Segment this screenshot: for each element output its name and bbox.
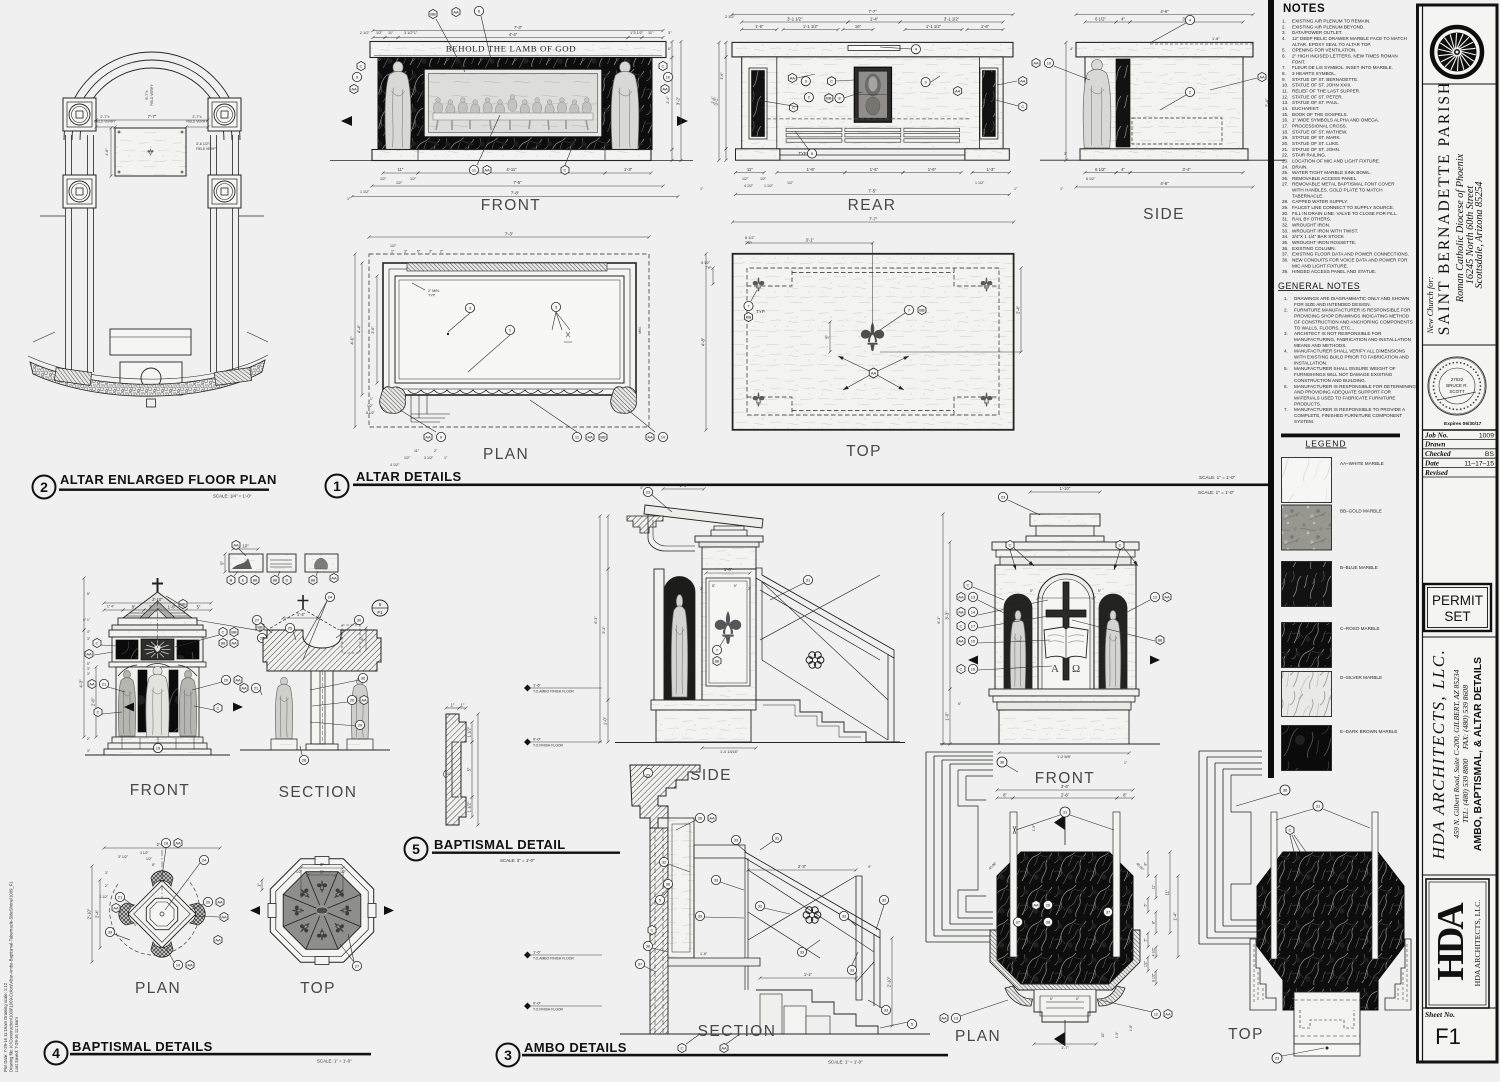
svg-text:8 1/2": 8 1/2" [701,261,711,265]
svg-text:3/4"X 1 1/4" BAR STOCK: 3/4"X 1 1/4" BAR STOCK [1292,234,1345,239]
svg-text:BAPTISMAL DETAILS: BAPTISMAL DETAILS [72,1039,213,1054]
svg-text:AA: AA [790,75,796,80]
svg-text:6 1/2": 6 1/2" [1095,17,1106,22]
svg-text:AA: AA [871,370,877,375]
svg-text:1'-4": 1'-4" [1173,912,1178,921]
svg-text:AA: AA [662,86,668,91]
svg-text:1'-10": 1'-10" [1060,486,1071,491]
svg-text:STATUE OF ST. PAUL.: STATUE OF ST. PAUL. [1292,100,1339,105]
svg-text:1'-6": 1'-6" [1212,37,1220,41]
svg-text:30: 30 [361,675,366,680]
svg-text:1'-6": 1'-6" [679,483,688,488]
svg-text:LEGEND: LEGEND [1306,439,1347,449]
svg-text:33: 33 [850,967,855,972]
svg-text:1/2": 1/2" [396,181,403,185]
svg-text:88: 88 [273,577,278,582]
svg-text:AA: AA [235,677,241,682]
svg-text:Date: Date [1424,460,1440,468]
svg-text:FAUCET LINE CONNECT TO SUPPLY: FAUCET LINE CONNECT TO SUPPLY SOURCE. [1292,205,1394,210]
svg-text:30.: 30. [1282,211,1288,216]
svg-text:12.: 12. [1282,94,1288,99]
svg-text:15: 15 [971,638,976,643]
svg-text:ARCHITECT IS NOT RESPONSIBLE F: ARCHITECT IS NOT RESPONSIBLE FOR [1294,331,1382,336]
svg-text:1.: 1. [1284,296,1288,301]
svg-text:23: 23 [1001,494,1006,499]
svg-text:4: 4 [52,1045,60,1061]
svg-text:6": 6" [1003,793,1007,798]
svg-text:MIN.: MIN. [638,326,642,333]
svg-text:DRAWINGS ARE DIAGRAMMATIC ONLY: DRAWINGS ARE DIAGRAMMATIC ONLY AND SHOWN [1294,296,1409,301]
svg-text:27: 27 [255,617,260,622]
svg-text:32: 32 [882,897,887,902]
svg-text:2 1/2": 2 1/2" [360,31,370,35]
svg-text:Revised: Revised [1424,469,1448,477]
svg-text:1'-6": 1'-6" [1129,1024,1133,1031]
svg-text:14.: 14. [1282,106,1288,111]
svg-text:5": 5" [361,637,366,641]
svg-text:C: C [1289,827,1292,832]
svg-text:AA: AA [721,1045,727,1050]
svg-text:37.: 37. [1282,252,1288,257]
svg-text:24: 24 [202,857,207,862]
svg-text:B–BLUE MARBLE: B–BLUE MARBLE [1340,565,1378,570]
svg-text:AA: AA [351,86,357,91]
svg-text:EUCHARIST.: EUCHARIST. [1292,106,1319,111]
svg-text:14: 14 [971,609,976,614]
svg-text:1/2": 1/2" [390,244,397,248]
svg-text:3": 3" [149,605,153,610]
svg-text:25: 25 [288,625,293,630]
svg-text:TABERNACLE.: TABERNACLE. [1292,193,1324,198]
svg-text:12: 12 [1153,594,1158,599]
svg-text:AA: AA [958,594,964,599]
svg-text:6 1/2": 6 1/2" [1086,177,1096,181]
svg-text:TEL: (480) 539 8800 FAX: (: TEL: (480) 539 8800 FAX: (480) 539 8608 [1461,685,1470,823]
svg-text:3'-6 1/2"±: 3'-6 1/2"± [196,142,211,146]
svg-text:3 HEARTS SYMBOL.: 3 HEARTS SYMBOL. [1292,71,1336,76]
svg-text:C: C [830,79,833,84]
svg-text:21: 21 [102,681,107,686]
svg-text:16: 16 [971,666,976,671]
svg-text:1'-1 1/2": 1'-1 1/2" [803,24,819,29]
svg-text:1/2": 1/2" [367,404,374,408]
svg-text:AA: AA [453,9,459,14]
svg-text:BB–GOLD MARBLE: BB–GOLD MARBLE [1340,509,1382,514]
svg-text:RAIL BY OTHERS.: RAIL BY OTHERS. [1292,217,1331,222]
svg-text:24: 24 [328,594,333,599]
svg-text:8": 8" [132,605,136,610]
svg-text:BB: BB [231,629,237,634]
svg-text:1 1/2": 1 1/2" [467,801,472,812]
svg-text:1/2": 1/2" [380,177,387,181]
svg-text:REMOVABLE ACCESS PANEL.: REMOVABLE ACCESS PANEL. [1292,176,1357,181]
svg-text:6'-3": 6'-3" [937,616,941,624]
svg-text:20: 20 [350,697,355,702]
svg-text:AA: AA [86,651,92,656]
svg-text:11": 11" [648,31,654,35]
svg-text:FILL IN DRAIN LINE. VALVE TO C: FILL IN DRAIN LINE. VALVE TO CLOSE FOR F… [1292,211,1398,216]
svg-text:Α: Α [1051,663,1059,675]
svg-text:SAINT BERNADETTE PARISH: SAINT BERNADETTE PARISH [1436,81,1453,335]
svg-text:1/2": 1/2" [760,177,767,181]
svg-text:BB: BB [746,314,752,319]
svg-text:1'-0": 1'-0" [945,712,950,721]
svg-text:1'-5": 1'-5" [1115,1031,1119,1038]
svg-text:11": 11" [414,449,420,453]
svg-text:1'-6": 1'-6" [720,72,724,80]
svg-text:1 1/2": 1 1/2" [467,726,472,737]
svg-text:6.: 6. [1284,384,1288,389]
svg-text:AA: AA [233,542,239,547]
svg-text:EXISTING AIR PLENUM TO REMAIN.: EXISTING AIR PLENUM TO REMAIN. [1292,19,1370,24]
svg-text:FOR SIZE AND INTENDED DESIGN.: FOR SIZE AND INTENDED DESIGN. [1294,302,1371,307]
svg-text:8 1/2": 8 1/2" [366,411,376,415]
svg-text:AA: AA [587,434,593,439]
svg-text:Checked: Checked [1425,450,1451,458]
svg-text:1/2": 1/2" [404,456,411,460]
svg-text:INSTALLATION.: INSTALLATION. [1294,360,1327,365]
svg-text:2'-4": 2'-4" [1016,305,1021,314]
svg-text:PRODUCTS.: PRODUCTS. [1294,401,1321,406]
svg-text:OF CONSTRUCTION AND ANCHORING: OF CONSTRUCTION AND ANCHORING COMPONENTS [1294,319,1413,324]
svg-text:2'-4": 2'-4" [666,96,670,104]
svg-text:1'-0 13/16": 1'-0 13/16" [720,750,739,754]
svg-text:2'-4": 2'-4" [711,96,715,104]
svg-text:C: C [681,1045,684,1050]
svg-text:9.: 9. [1282,77,1286,82]
svg-text:AND PROVIDING ADEQUATE SUPPORT: AND PROVIDING ADEQUATE SUPPORT FOR [1294,390,1392,395]
svg-text:FRONT: FRONT [481,197,541,214]
svg-text:32: 32 [662,859,667,864]
svg-text:21: 21 [118,894,123,899]
svg-text:C: C [960,666,963,671]
svg-text:11–17–15: 11–17–15 [1464,461,1494,468]
svg-text:BB: BB [919,307,925,312]
svg-text:32: 32 [842,913,847,918]
svg-text:AMBO DETAILS: AMBO DETAILS [524,1040,627,1055]
svg-text:2'-7"±: 2'-7"± [192,115,201,119]
svg-text:2'-4": 2'-4" [95,909,100,918]
svg-text:Ω: Ω [1072,663,1080,675]
svg-text:36: 36 [666,881,671,886]
svg-text:5": 5" [1064,592,1068,597]
svg-text:7'-7": 7'-7" [868,9,877,14]
svg-text:TYP.: TYP. [428,294,436,298]
svg-text:AMBO, BAPTISMAL, & ALTAR DETAI: AMBO, BAPTISMAL, & ALTAR DETAILS [1473,657,1484,851]
svg-text:1/2": 1/2" [742,177,749,181]
svg-text:MANUFACTURER IS RESPONSIBLE FO: MANUFACTURER IS RESPONSIBLE FOR DETERMIN… [1294,384,1416,389]
svg-text:STATUE OF ST. JOHN XXIII.: STATUE OF ST. JOHN XXIII. [1292,83,1351,88]
svg-text:1'-2 5/8": 1'-2 5/8" [1057,755,1072,759]
svg-text:AA: AA [331,575,337,580]
svg-text:1"3 1/2": 1"3 1/2" [630,31,644,35]
svg-text:EXISTING AIR PLENUM BEYOND.: EXISTING AIR PLENUM BEYOND. [1292,24,1365,29]
svg-text:8 1/2": 8 1/2" [745,236,755,240]
svg-text:AA: AA [113,905,119,910]
svg-text:15.: 15. [1282,112,1288,117]
svg-text:7'-5": 7'-5" [513,180,522,185]
svg-text:39: 39 [108,929,113,934]
svg-text:1": 1" [451,703,455,708]
svg-text:SIDE: SIDE [1143,206,1185,223]
svg-text:11": 11" [388,31,394,35]
svg-text:FONT.: FONT. [1292,59,1305,64]
svg-text:0'-0": 0'-0" [533,1001,542,1006]
svg-text:AA: AA [89,681,95,686]
svg-text:31.: 31. [1282,217,1288,222]
svg-text:STATUE OF ST. BERNADETTE.: STATUE OF ST. BERNADETTE. [1292,77,1358,82]
svg-text:BB: BB [600,434,606,439]
svg-text:23: 23 [1275,1055,1280,1060]
svg-text:13: 13 [954,1015,959,1020]
svg-text:1/2": 1/2" [410,177,417,181]
svg-text:Expires 06/30/17: Expires 06/30/17 [1444,421,1482,427]
svg-text:BB: BB [430,11,436,16]
svg-text:RELIEF OF THE LAST SUPPER.: RELIEF OF THE LAST SUPPER. [1292,89,1360,94]
svg-text:C: C [651,927,654,932]
svg-text:T.O.AMBO FINISH FLOOR: T.O.AMBO FINISH FLOOR [533,690,574,694]
svg-text:24.: 24. [1282,164,1288,169]
svg-text:11": 11" [1165,889,1170,895]
svg-text:SECTION: SECTION [698,1023,777,1040]
svg-text:35.: 35. [1282,240,1288,245]
svg-text:FIELD VERIFY: FIELD VERIFY [94,120,116,124]
svg-text:D: D [286,577,289,582]
svg-text:31: 31 [806,577,811,582]
svg-text:STATUE OF ST. MARK.: STATUE OF ST. MARK. [1292,135,1341,140]
svg-text:18: 18 [164,840,169,845]
svg-text:88: 88 [715,658,720,663]
svg-text:2.: 2. [1282,24,1286,29]
svg-text:HINGED ACCESS PANEL AND STATUE: HINGED ACCESS PANEL AND STATUE. [1292,269,1376,274]
svg-text:AA: AA [1033,902,1039,907]
svg-text:WROUGHT IRON ROSSETTE.: WROUGHT IRON ROSSETTE. [1292,240,1356,245]
svg-text:459 N. Gilbert Road, Suite C-2: 459 N. Gilbert Road, Suite C-200, GILBER… [1452,669,1461,838]
svg-text:10": 10" [1101,1032,1105,1038]
svg-text:1": 1" [461,703,465,708]
svg-text:ALTAR ENLARGED FLOOR PLAN: ALTAR ENLARGED FLOOR PLAN [60,472,277,487]
svg-text:32.: 32. [1282,223,1288,228]
svg-text:3'-4": 3'-4" [1182,167,1191,172]
svg-text:1'-6": 1'-6" [870,167,879,172]
svg-text:WROUGHT IRON WITH TWIST.: WROUGHT IRON WITH TWIST. [1292,228,1358,233]
svg-text:2'-6": 2'-6" [1061,793,1070,798]
svg-text:WROUGHT IRON.: WROUGHT IRON. [1292,223,1330,228]
svg-text:C: C [222,629,225,634]
svg-text:AA: AA [1164,594,1170,599]
svg-text:1'-6": 1'-6" [981,24,990,29]
svg-text:2 1/2": 2 1/2" [99,895,108,899]
svg-text:F1: F1 [1435,1024,1461,1049]
svg-text:AA–WHITE MARBLE: AA–WHITE MARBLE [1340,461,1384,466]
svg-text:1'-3": 1'-3" [624,167,633,172]
svg-text:7.: 7. [1282,65,1286,70]
svg-text:MANUFACTURER IS RESPONSIBLE TO: MANUFACTURER IS RESPONSIBLE TO PROVIDE A [1294,407,1406,412]
svg-text:19.: 19. [1282,135,1288,140]
svg-text:26: 26 [1046,902,1051,907]
svg-text:4 1/2": 4 1/2" [1152,947,1156,957]
svg-text:1'-4": 1'-4" [870,17,879,22]
svg-text:6.: 6. [1282,54,1286,59]
svg-text:36: 36 [1283,787,1288,792]
svg-text:SCALE: 1" = 1'-0": SCALE: 1" = 1'-0" [317,1059,352,1064]
svg-text:88: 88 [311,577,316,582]
svg-text:TOP: TOP [846,443,882,460]
svg-text:2'-10": 2'-10" [87,908,92,919]
svg-text:TYP.: TYP. [799,151,808,156]
svg-text:F1: F1 [377,610,383,615]
svg-text:23.: 23. [1282,158,1288,163]
svg-text:28.: 28. [1282,199,1288,204]
svg-text:2" MIN.: 2" MIN. [428,289,440,293]
svg-text:BB: BB [257,624,263,629]
svg-text:10: 10 [666,74,671,79]
svg-text:SCALE: 1" = 1'-0": SCALE: 1" = 1'-0" [828,1060,863,1065]
svg-text:E–DARK BROWN MARBLE: E–DARK BROWN MARBLE [1340,729,1397,734]
svg-text:4.: 4. [1282,36,1286,41]
svg-text:4.: 4. [1284,349,1288,354]
svg-text:4'-3": 4'-3" [79,679,84,688]
svg-text:1'-6": 1'-6" [724,567,733,572]
svg-text:FURNITURE MANUFACTURER IS RESP: FURNITURE MANUFACTURER IS RESPONSIBLE FO… [1294,308,1411,313]
svg-text:6'-7"±: 6'-7"± [145,90,149,99]
svg-text:3'-2": 3'-2" [676,96,681,105]
svg-text:3.: 3. [1282,30,1286,35]
svg-text:4'-6": 4'-6" [350,336,355,345]
svg-text:3'-1": 3'-1" [806,238,815,243]
svg-text:C: C [1119,542,1122,547]
svg-text:7'-3": 7'-3" [514,25,523,30]
svg-text:C: C [97,709,100,714]
svg-text:13: 13 [971,594,976,599]
svg-text:27.: 27. [1282,182,1288,187]
svg-text:30: 30 [357,617,362,622]
svg-text:TYP.: TYP. [756,309,766,314]
svg-text:TO WALLS, FLOORS, ETC...: TO WALLS, FLOORS, ETC... [1294,325,1354,330]
svg-text:8 1/2": 8 1/2" [1152,972,1156,982]
svg-text:OPENING FOR VENTILATION.: OPENING FOR VENTILATION. [1292,48,1357,53]
svg-text:REMOVABLE METAL BAPTISMAL FONT: REMOVABLE METAL BAPTISMAL FONT COVER [1292,182,1395,187]
svg-text:B: B [230,577,233,582]
svg-text:STATUE OF ST. JOHN.: STATUE OF ST. JOHN. [1292,147,1340,152]
svg-text:BS: BS [1485,451,1495,458]
svg-text:BB: BB [180,601,186,606]
svg-text:23: 23 [646,772,651,777]
svg-text:FURNISHINGS WILL NOT DAMAGE EX: FURNISHINGS WILL NOT DAMAGE EXISTING [1294,372,1393,377]
svg-text:4 1/2": 4 1/2" [744,184,754,188]
svg-text:SET: SET [1444,609,1470,624]
svg-text:36: 36 [1000,759,1005,764]
svg-text:20.: 20. [1282,141,1288,146]
svg-text:ALTAR DETAILS: ALTAR DETAILS [356,469,462,484]
svg-text:5: 5 [412,841,420,857]
svg-text:7'-3": 7'-3" [505,232,514,237]
svg-text:28: 28 [302,757,307,762]
svg-text:FLEUR DE LIS SYMBOL. INSET INT: FLEUR DE LIS SYMBOL. INSET INTO MARBLE. [1292,65,1393,70]
svg-text:PROVIDING SHOP DRAWINGS INDICA: PROVIDING SHOP DRAWINGS INDICATING METHO… [1294,314,1410,319]
svg-text:3'-6": 3'-6" [1061,784,1070,789]
svg-text:AA: AA [1165,1011,1171,1016]
svg-text:4": 4" [1121,17,1125,22]
svg-text:34.: 34. [1282,234,1288,239]
svg-text:AA: AA [1033,60,1039,65]
svg-text:MANUFACTURING, FABRICATION AND: MANUFACTURING, FABRICATION AND INSTALLAT… [1294,337,1411,342]
svg-text:2" HIGH INCISED LETTERS. NEW T: 2" HIGH INCISED LETTERS. NEW TIMES ROMAN [1292,54,1398,59]
svg-text:Plot Date: 7-29-16 11:16am: Plot Date: 7-29-16 11:16am Drawing scale… [3,982,8,1072]
svg-text:1/2": 1/2" [446,772,453,776]
svg-text:PLAN: PLAN [483,446,529,463]
svg-text:D–SILVER MARBLE: D–SILVER MARBLE [1340,675,1382,680]
svg-text:7'-7": 7'-7" [869,217,878,222]
svg-text:1" 4": 1" 4" [107,605,115,609]
svg-text:2 1/2": 2 1/2" [725,15,735,19]
svg-text:22.: 22. [1282,153,1288,158]
svg-text:Drawn: Drawn [1424,441,1445,449]
svg-text:LOCATION OF MIC AND LIGHT FIXT: LOCATION OF MIC AND LIGHT FIXTURE. [1292,158,1380,163]
svg-text:12" DEEP RELIC DRAWER MARBLE F: 12" DEEP RELIC DRAWER MARBLE FACE TO MAT… [1292,36,1407,41]
svg-text:1: 1 [333,478,341,494]
svg-text:7'-7": 7'-7" [148,114,157,119]
svg-text:1/2": 1/2" [146,857,153,861]
svg-text:AA: AA [187,962,193,967]
svg-text:FIELD VERIFY: FIELD VERIFY [186,120,208,124]
svg-text:BOOK OF THE GOSPELS.: BOOK OF THE GOSPELS. [1292,112,1348,117]
svg-text:AA: AA [709,815,715,820]
svg-text:1/2": 1/2" [787,181,794,185]
svg-text:PLAN: PLAN [135,980,181,997]
svg-text:AA: AA [955,88,961,93]
svg-text:26: 26 [698,815,703,820]
svg-text:0'-0": 0'-0" [533,737,542,742]
svg-text:WITH HANDLES. GOLD PLATE TO MA: WITH HANDLES. GOLD PLATE TO MATCH [1292,188,1383,193]
svg-text:21: 21 [254,685,259,690]
svg-text:AA: AA [231,640,237,645]
svg-text:3 1/2"1": 3 1/2"1" [404,31,418,35]
svg-text:FRONT: FRONT [130,782,190,799]
svg-text:5": 5" [220,561,225,565]
svg-text:SCALE: 1/4" = 1'-0": SCALE: 1/4" = 1'-0" [213,494,252,499]
svg-text:5": 5" [467,767,472,771]
svg-text:MIC AND LIGHT FIXTURE.: MIC AND LIGHT FIXTURE. [1292,263,1348,268]
svg-text:2'-6": 2'-6" [91,697,96,706]
svg-text:1 1/2": 1 1/2" [975,181,985,185]
svg-text:6": 6" [320,862,324,867]
svg-text:36.: 36. [1282,246,1288,251]
svg-text:REAR: REAR [848,197,897,214]
svg-text:5": 5" [197,605,201,610]
svg-text:NOTES: NOTES [1283,3,1325,15]
svg-text:21.: 21. [1282,147,1288,152]
svg-text:11": 11" [1152,884,1156,890]
svg-text:AA: AA [647,434,653,439]
svg-text:3'-3": 3'-3" [945,611,950,620]
svg-text:DATA/POWER OUTLET.: DATA/POWER OUTLET. [1292,30,1342,35]
svg-text:25.: 25. [1282,170,1288,175]
svg-text:27022: 27022 [1451,377,1464,382]
svg-text:3'-6": 3'-6" [371,326,375,334]
svg-text:BEHOLD THE LAMB OF GOD: BEHOLD THE LAMB OF GOD [446,44,576,54]
svg-text:37: 37 [638,961,643,966]
svg-text:1'-9": 1'-9" [1032,824,1036,832]
svg-text:23: 23 [646,489,651,494]
svg-text:AA: AA [941,1015,947,1020]
svg-text:1'-3": 1'-3" [986,167,995,172]
svg-text:1 1/2": 1 1/2" [764,184,774,188]
svg-text:13.: 13. [1282,100,1288,105]
svg-text:1 1/2": 1 1/2" [360,190,370,194]
svg-text:MANUFACTURER SHALL VERIFY ALL: MANUFACTURER SHALL VERIFY ALL DIMENSIONS [1294,349,1405,354]
svg-text:4'-4": 4'-4" [357,324,362,333]
